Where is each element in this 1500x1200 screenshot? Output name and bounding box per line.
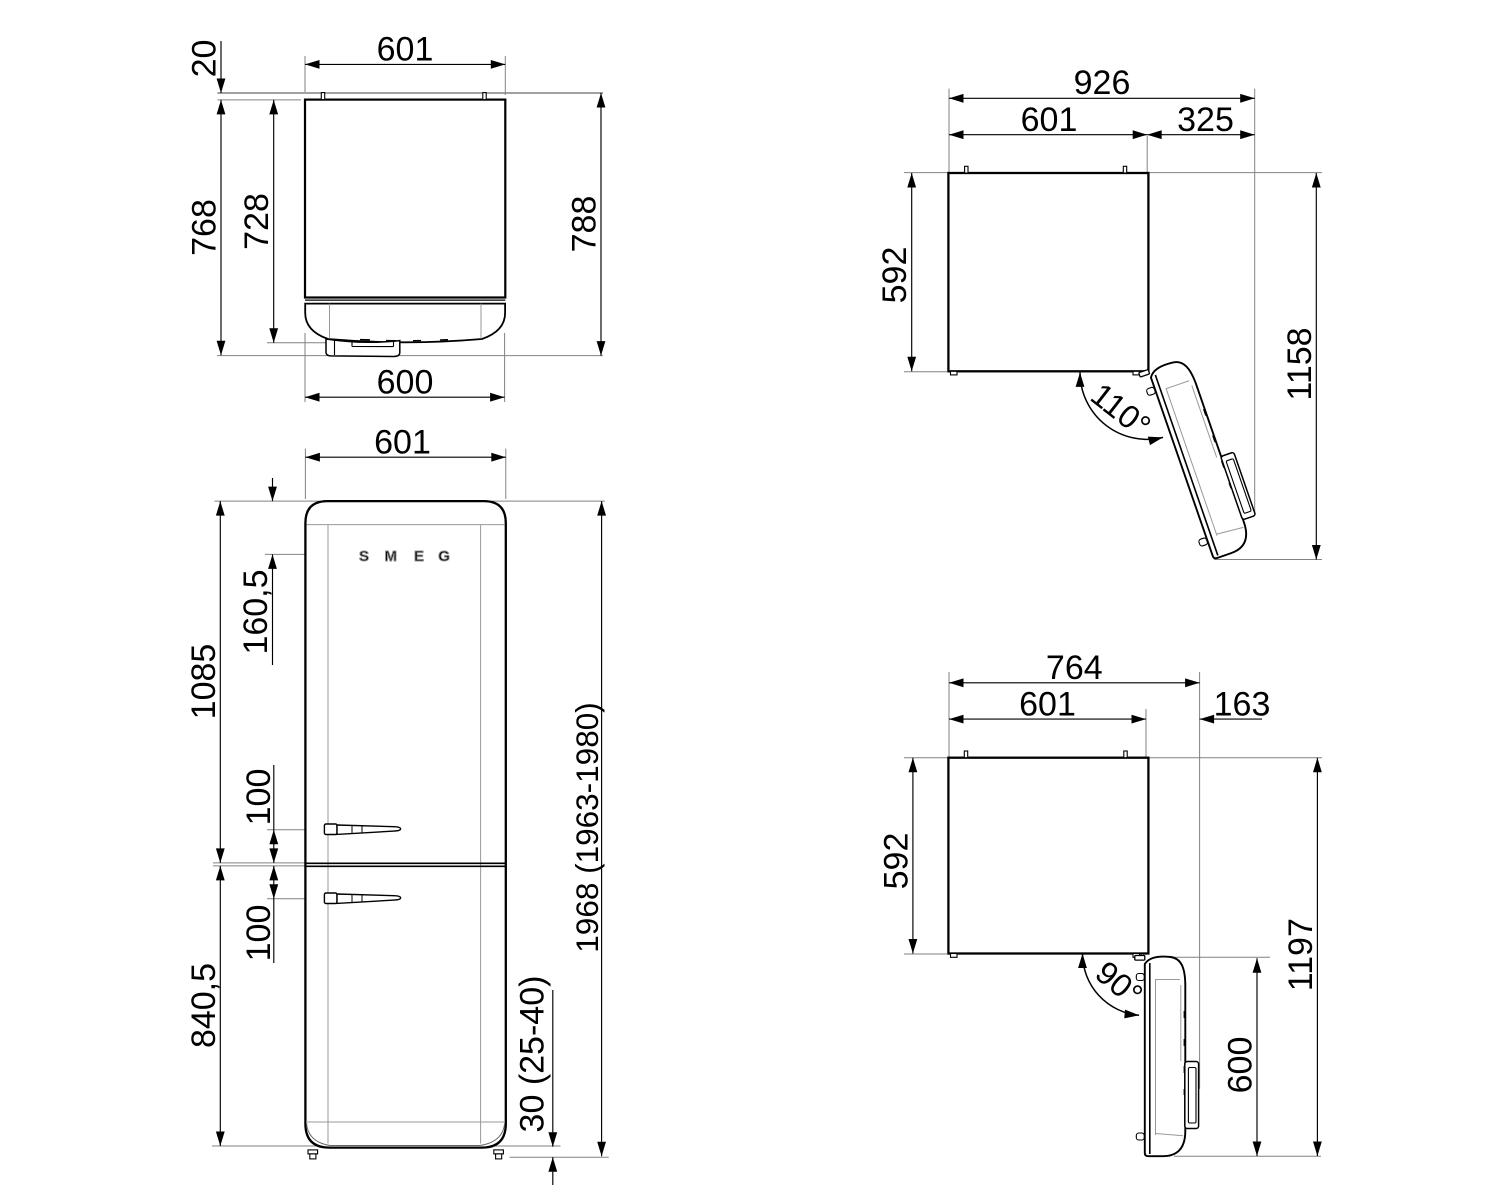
- svg-text:601: 601: [374, 423, 431, 461]
- svg-text:1085: 1085: [185, 644, 223, 720]
- svg-text:100: 100: [240, 905, 278, 962]
- svg-text:788: 788: [566, 196, 604, 253]
- svg-text:1968 (1963-1980): 1968 (1963-1980): [569, 702, 605, 952]
- svg-text:600: 600: [1222, 1037, 1260, 1094]
- svg-text:E: E: [414, 548, 424, 565]
- svg-text:764: 764: [1046, 649, 1103, 687]
- svg-text:601: 601: [1021, 101, 1078, 139]
- svg-text:592: 592: [876, 247, 914, 304]
- svg-text:163: 163: [1214, 685, 1271, 723]
- svg-text:600: 600: [377, 363, 434, 401]
- svg-text:601: 601: [377, 31, 434, 69]
- svg-text:1197: 1197: [1282, 918, 1320, 991]
- svg-text:20: 20: [186, 40, 224, 78]
- svg-text:601: 601: [1019, 685, 1076, 723]
- svg-text:840,5: 840,5: [185, 963, 223, 1048]
- svg-text:G: G: [438, 548, 450, 565]
- svg-text:M: M: [384, 548, 397, 565]
- svg-text:160,5: 160,5: [237, 569, 275, 654]
- svg-text:325: 325: [1177, 101, 1234, 139]
- svg-text:1158: 1158: [1281, 327, 1319, 400]
- svg-text:728: 728: [238, 193, 276, 250]
- svg-text:30 (25-40): 30 (25-40): [514, 976, 552, 1133]
- svg-text:100: 100: [240, 769, 278, 826]
- svg-text:926: 926: [1074, 64, 1131, 102]
- svg-text:592: 592: [877, 833, 915, 890]
- svg-text:768: 768: [186, 199, 224, 256]
- svg-text:S: S: [359, 548, 369, 565]
